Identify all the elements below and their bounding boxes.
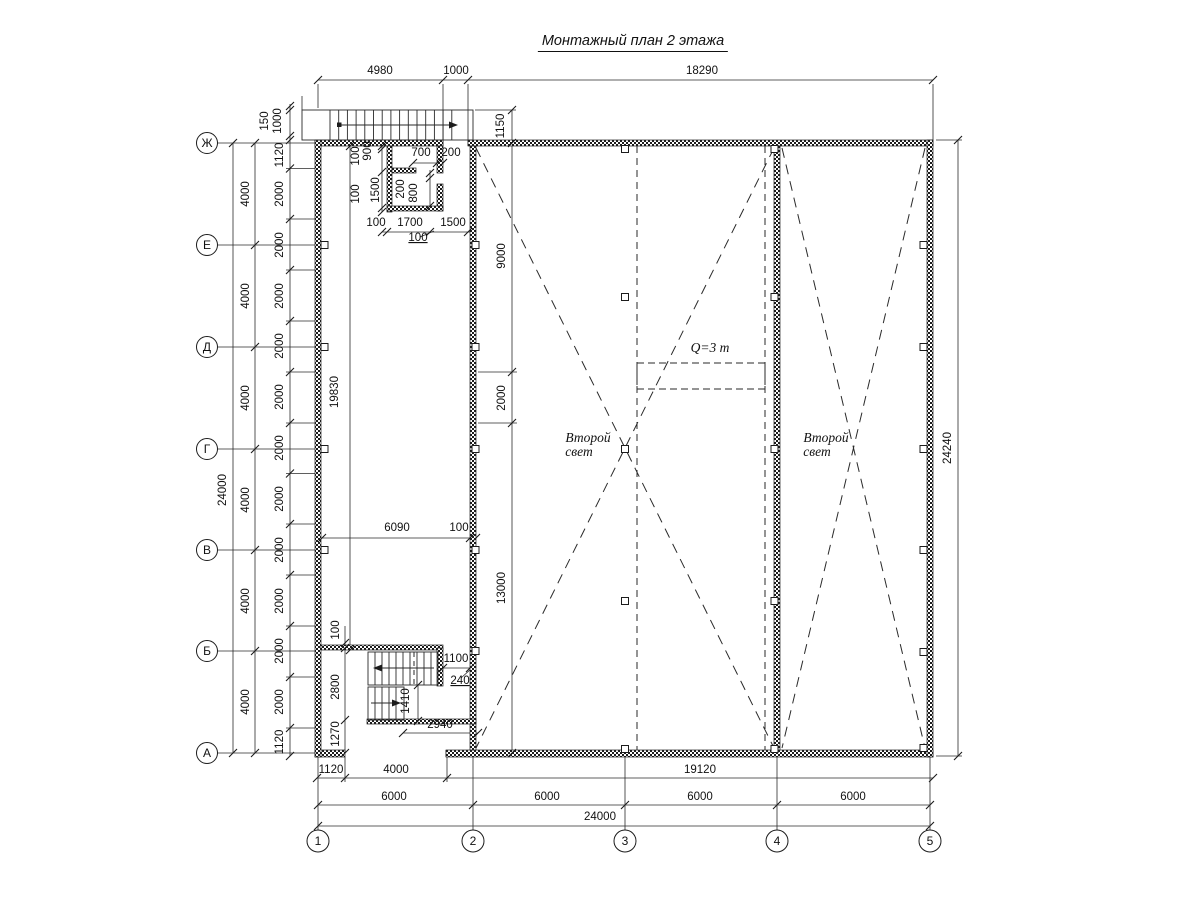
- dim-label: 200: [441, 147, 460, 159]
- dim-label: 2000: [274, 181, 286, 207]
- dim-label: 19120: [684, 764, 716, 776]
- dim-label: 1700: [397, 217, 423, 229]
- dim-label: 2000: [274, 232, 286, 258]
- dim-label: 2000: [274, 486, 286, 512]
- axis-column-label: 4: [774, 834, 781, 848]
- dim-label: 700: [411, 147, 430, 159]
- dim-label: 6000: [687, 791, 713, 803]
- dim-label: 150: [259, 111, 271, 130]
- dim-label: 4000: [383, 764, 409, 776]
- dim-label: 1120: [274, 143, 286, 168]
- note-label: Второй: [803, 430, 848, 445]
- dim-label: 200: [395, 179, 407, 198]
- dim-label: 4000: [240, 487, 252, 513]
- dim-label: 1500: [370, 177, 382, 203]
- axis-row-label: В: [203, 543, 211, 557]
- dim-label: 2000: [274, 283, 286, 309]
- dim-label: 2000: [274, 435, 286, 461]
- dim-label: 1000: [272, 108, 284, 134]
- dim-label: 4000: [240, 588, 252, 614]
- axis-row-label: Е: [203, 238, 211, 252]
- note-label: Второй: [565, 430, 610, 445]
- dim-label: 2000: [274, 384, 286, 410]
- dim-label: 1120: [274, 730, 286, 755]
- dim-label: 1100: [444, 653, 469, 665]
- dim-label: 100: [350, 184, 362, 203]
- dim-label: 9000: [496, 243, 508, 269]
- dim-label: 24000: [217, 474, 229, 506]
- dim-label: 100: [350, 146, 362, 165]
- dim-label: 4000: [240, 181, 252, 207]
- dim-label: 19830: [329, 376, 341, 408]
- dim-label: 100: [330, 620, 342, 639]
- dim-label: 1410: [400, 688, 412, 714]
- note-label: Q=3 т: [691, 340, 730, 355]
- dim-label: 6090: [384, 522, 410, 534]
- dim-label: 2000: [274, 333, 286, 359]
- dim-label: 13000: [496, 572, 508, 604]
- dim-label: 100: [366, 217, 385, 229]
- dim-label: 4980: [367, 65, 393, 77]
- dim-label: 1500: [440, 217, 466, 229]
- dim-label: 900: [362, 141, 374, 160]
- dim-label: 2940: [427, 719, 453, 731]
- dim-label: 4000: [240, 385, 252, 411]
- dim-label: 2000: [274, 689, 286, 715]
- dim-label: 800: [408, 183, 420, 202]
- dim-label: 100: [449, 522, 468, 534]
- note-labels: Q=3 тВторойсветВторойсвет: [565, 340, 849, 459]
- dim-label: 24000: [584, 811, 616, 823]
- dim-label: 2000: [274, 638, 286, 664]
- dim-label: 240: [450, 675, 469, 687]
- dim-label: 1270: [330, 721, 342, 747]
- floor-plan-svg: ЖЕДГВБА12345 498010001829015010001150240…: [0, 0, 1200, 900]
- axis-column-label: 1: [315, 834, 322, 848]
- dim-label: 1150: [495, 114, 507, 139]
- note-label: свет: [565, 444, 593, 459]
- stair-arrow-head: [373, 665, 382, 672]
- dim-label: 6000: [534, 791, 560, 803]
- dim-label: 1120: [319, 764, 344, 776]
- axis-row-label: Г: [204, 442, 211, 456]
- dim-label: 2000: [496, 385, 508, 411]
- drawing-sheet: Монтажный план 2 этажа ЖЕДГВБА12345 4980…: [0, 0, 1200, 900]
- axis-row-label: Б: [203, 644, 211, 658]
- axis-column-label: 3: [622, 834, 629, 848]
- stair-arrow-head: [449, 122, 458, 129]
- dim-label: 2800: [330, 674, 342, 700]
- dim-label: 2000: [274, 537, 286, 563]
- dim-label: 24240: [942, 432, 954, 464]
- axis-row-label: Д: [203, 340, 211, 354]
- dim-label: 6000: [381, 791, 407, 803]
- axis-column-label: 5: [927, 834, 934, 848]
- dim-label: 6000: [840, 791, 866, 803]
- note-label: свет: [803, 444, 831, 459]
- axis-column-label: 2: [470, 834, 477, 848]
- axis-row-label: А: [203, 746, 211, 760]
- dim-label: 1000: [443, 65, 469, 77]
- dim-label: 18290: [686, 65, 718, 77]
- dim-label: 4000: [240, 689, 252, 715]
- dim-label: 100: [408, 232, 427, 244]
- void-diagonals-and-crane-rails: [414, 146, 925, 750]
- dim-label: 4000: [240, 283, 252, 309]
- axis-circles: ЖЕДГВБА12345: [197, 133, 942, 853]
- axis-row-label: Ж: [201, 136, 212, 150]
- dim-label: 2000: [274, 588, 286, 614]
